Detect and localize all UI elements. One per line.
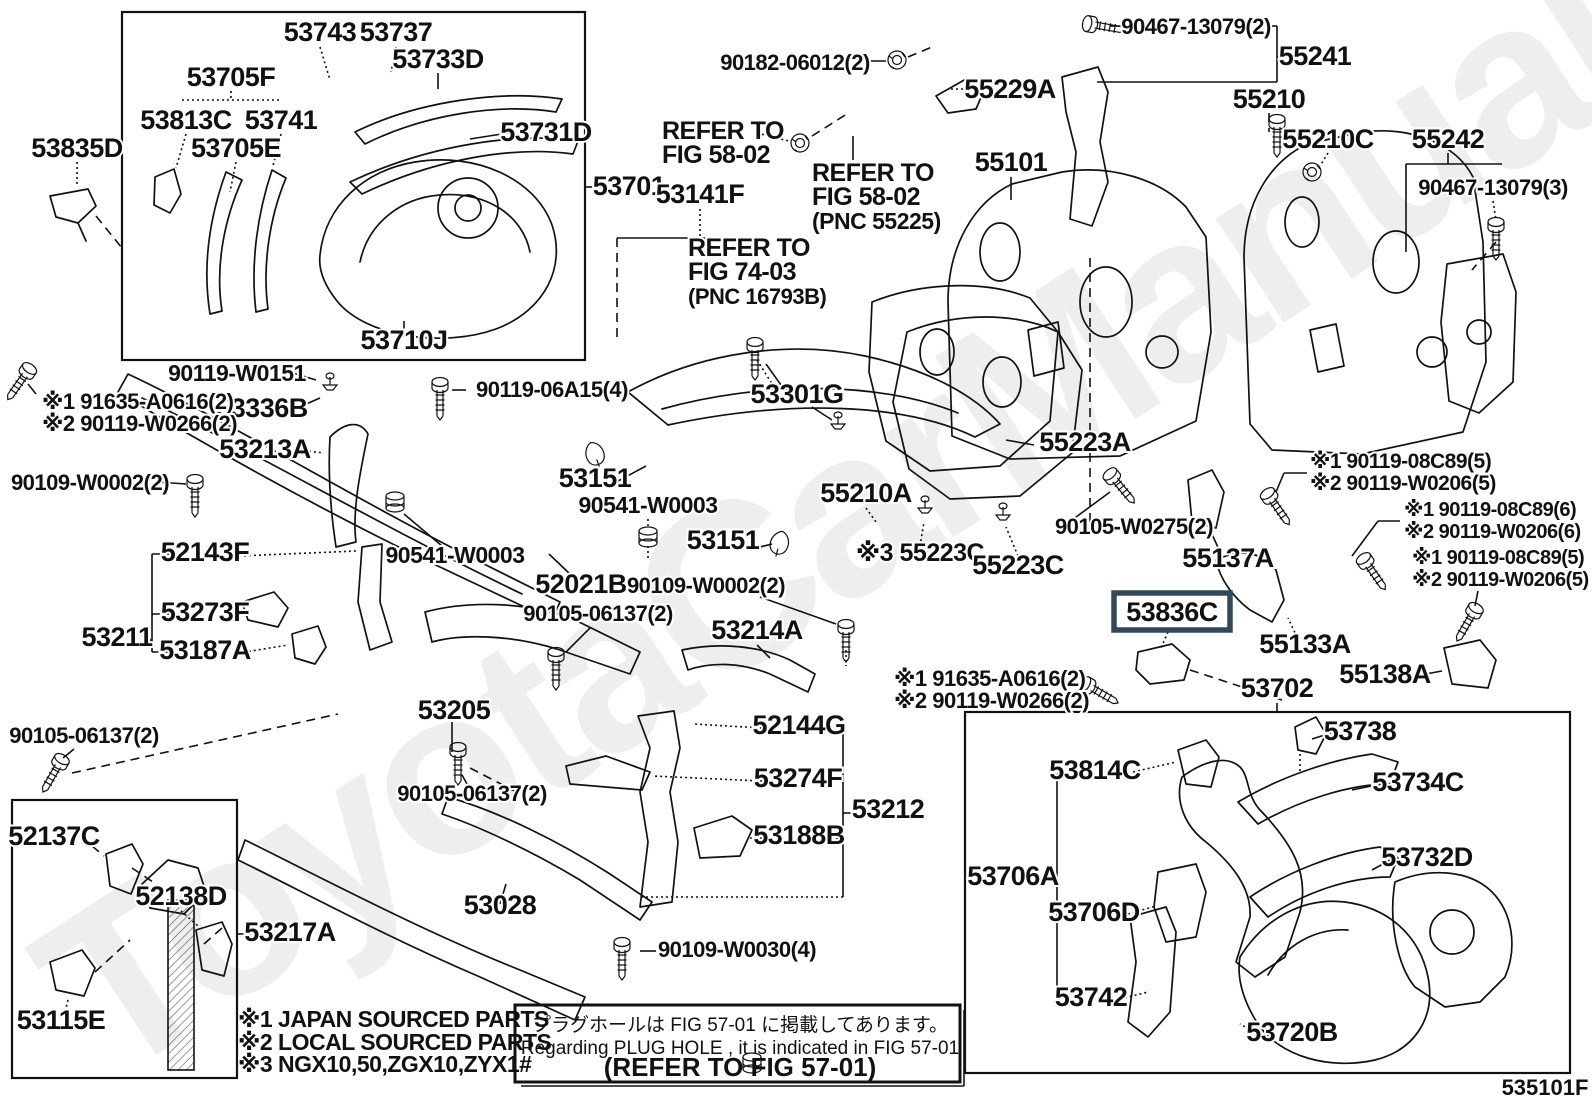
part-label-53738[interactable]: 53738 [1324,716,1397,746]
part-label-53814c[interactable]: 53814C [1049,755,1141,785]
leader-line [63,749,74,758]
part-label-53214a[interactable]: 53214A [711,615,803,645]
bolt-icon [36,751,71,796]
part-label-53151[interactable]: 53151 [687,525,760,555]
part-label-53212[interactable]: 53212 [852,794,925,824]
bolt-icon [1,360,38,404]
bolt-icon [1354,550,1391,594]
part-label-3-55223c[interactable]: ※3 55223C [856,539,985,567]
part-label-55210a[interactable]: 55210A [820,478,912,508]
part-label-52137c[interactable]: 52137C [8,821,100,851]
note-refer: (REFER TO FIG 57-01) [604,1052,877,1082]
leader-line [320,47,330,80]
part-label-55133a[interactable]: 55133A [1259,629,1351,659]
part-label-53217a[interactable]: 53217A [244,917,336,947]
part-label-55137a[interactable]: 55137A [1182,543,1274,573]
part-label-90105-06137-2[interactable]: 90105-06137(2) [9,723,159,748]
bolt-icon [187,475,203,518]
leader-line [1352,521,1378,556]
part-label-53720b[interactable]: 53720B [1246,1017,1338,1047]
plug-hole-note: プラグホールは FIG 57-01 に掲載してあります。 Regarding P… [521,1014,959,1082]
part-label-90105-w0275-2[interactable]: 90105-W0275(2) [1055,514,1213,539]
part-label-90105-06137-2[interactable]: 90105-06137(2) [397,781,547,806]
bolt-icon [432,378,448,421]
part-label-53733d[interactable]: 53733D [392,44,484,74]
leader-line [176,134,186,168]
leader-line [1160,632,1168,650]
note-pnc-16793b: (PNC 16793B) [688,284,826,309]
part-label-55241[interactable]: 55241 [1279,41,1352,71]
sourcing-legend: ※1 JAPAN SOURCED PARTS ※2 LOCAL SOURCED … [238,1006,552,1077]
part-label-53710j[interactable]: 53710J [360,325,447,355]
part-label-55242[interactable]: 55242 [1412,124,1485,154]
part-label-53731d[interactable]: 53731D [500,117,592,147]
note-fig-58-02: FIG 58-02 [812,183,920,211]
part-label-55229a[interactable]: 55229A [964,74,1056,104]
leader-line [239,551,356,556]
part-label-53273f[interactable]: 53273F [161,597,250,627]
leader-line [96,216,122,248]
part-label-53743[interactable]: 53743 [284,17,357,47]
part-label-55223c[interactable]: 55223C [972,550,1064,580]
part-label-53211[interactable]: 53211 [81,622,153,652]
part-label-53742[interactable]: 53742 [1055,982,1128,1012]
part-label-53141f[interactable]: 53141F [656,179,745,209]
bolt-icon [1258,485,1295,529]
part-label-53213a[interactable]: 53213A [219,434,311,464]
part-label-90109-w0030-4[interactable]: 90109-W0030(4) [658,937,816,962]
part-label-2-90119-w0206-6[interactable]: ※2 90119-W0206(6) [1404,521,1581,543]
bolt-icon [747,338,763,381]
part-label-53151[interactable]: 53151 [559,463,632,493]
leader-line [1276,473,1284,492]
part-label-1-90119-08c89-6[interactable]: ※1 90119-08C89(6) [1404,499,1576,521]
note-fig-58-02: FIG 58-02 [662,141,770,169]
leader-line [812,112,850,136]
part-label-55101[interactable]: 55101 [975,147,1048,177]
part-label-53028[interactable]: 53028 [464,890,537,920]
part-label-53705e[interactable]: 53705E [191,133,281,163]
note-japanese: プラグホールは FIG 57-01 に掲載してあります。 [532,1014,948,1036]
leader-line [28,384,36,394]
part-label-52143f[interactable]: 52143F [161,537,250,567]
part-label-90119-w0151[interactable]: 90119-W0151 [168,360,306,386]
part-label-53702[interactable]: 53702 [1241,673,1314,703]
cushion-icon [386,492,404,512]
part-label-90119-06a15-4[interactable]: 90119-06A15(4) [476,377,628,402]
part-label-53205[interactable]: 53205 [418,695,491,725]
parts-diagram: ToyotaCarManuals.ru プラグホールは FIG 57-01 に掲… [0,0,1592,1099]
part-label-52021b[interactable]: 52021B [535,569,627,599]
part-label-53274f[interactable]: 53274F [754,763,843,793]
part-label-52138d[interactable]: 52138D [135,881,227,911]
part-label-1-90119-08c89-5[interactable]: ※1 90119-08C89(5) [1310,450,1491,473]
part-label-53734c[interactable]: 53734C [1372,767,1464,797]
part-label-52144g[interactable]: 52144G [752,710,845,740]
bolt-icon [1450,600,1485,645]
part-label-55138a[interactable]: 55138A [1339,659,1431,689]
part-label-55210c[interactable]: 55210C [1282,124,1374,154]
part-label-53188b[interactable]: 53188B [753,820,845,850]
part-label-2-90119-w0266-2[interactable]: ※2 90119-W0266(2) [42,411,237,436]
part-label-53732d[interactable]: 53732D [1381,842,1473,872]
figure-id: 535101F [1502,1075,1589,1099]
part-label-90467-13079-3[interactable]: 90467-13079(3) [1418,175,1568,200]
part-label-53813c[interactable]: 53813C [140,105,232,135]
part-label-2-90119-w0206-5[interactable]: ※2 90119-W0206(5) [1412,569,1589,591]
part-label-90182-06012-2[interactable]: 90182-06012(2) [720,50,870,75]
pin-icon [323,373,337,390]
part-label-53737[interactable]: 53737 [360,17,433,47]
part-label-90541-w0003[interactable]: 90541-W0003 [386,542,525,568]
part-label-53741[interactable]: 53741 [245,105,318,135]
part-label-90467-13079-2[interactable]: 90467-13079(2) [1121,14,1271,39]
part-label-53301g[interactable]: 53301G [750,379,843,409]
part-label-53836c-selected[interactable]: 53836C [1126,597,1218,627]
part-label-55210[interactable]: 55210 [1233,84,1306,114]
note-pnc-55225: (PNC 55225) [812,208,941,234]
part-label-90109-w0002-2[interactable]: 90109-W0002(2) [627,573,785,598]
part-label-53705f[interactable]: 53705F [187,62,276,92]
legend-line-3: ※3 NGX10,50,ZGX10,ZYX1# [238,1051,532,1077]
grommet-icon [888,51,906,69]
part-label-55223a[interactable]: 55223A [1039,427,1131,457]
part-label-53706a[interactable]: 53706A [967,861,1059,891]
bolt-icon [614,938,630,981]
leader-line [908,47,932,57]
part-label-53187a[interactable]: 53187A [159,635,251,665]
part-label-2-90119-w0206-5[interactable]: ※2 90119-W0206(5) [1310,472,1496,495]
part-label-53835d[interactable]: 53835D [31,133,123,163]
part-label-90109-w0002-2[interactable]: 90109-W0002(2) [11,470,169,495]
grommet-icon [791,134,809,152]
part-label-90541-w0003[interactable]: 90541-W0003 [579,492,718,518]
part-label-53115e[interactable]: 53115E [17,1005,106,1035]
parts-diagram-page: ToyotaCarManuals.ru プラグホールは FIG 57-01 に掲… [0,0,1592,1099]
note-fig-74-03: FIG 74-03 [688,258,796,286]
part-label-1-90119-08c89-5[interactable]: ※1 90119-08C89(5) [1412,547,1584,569]
part-label-53706d[interactable]: 53706D [1048,897,1140,927]
part-label-2-90119-w0266-2[interactable]: ※2 90119-W0266(2) [894,688,1089,713]
part-label-90105-06137-2[interactable]: 90105-06137(2) [523,601,673,626]
